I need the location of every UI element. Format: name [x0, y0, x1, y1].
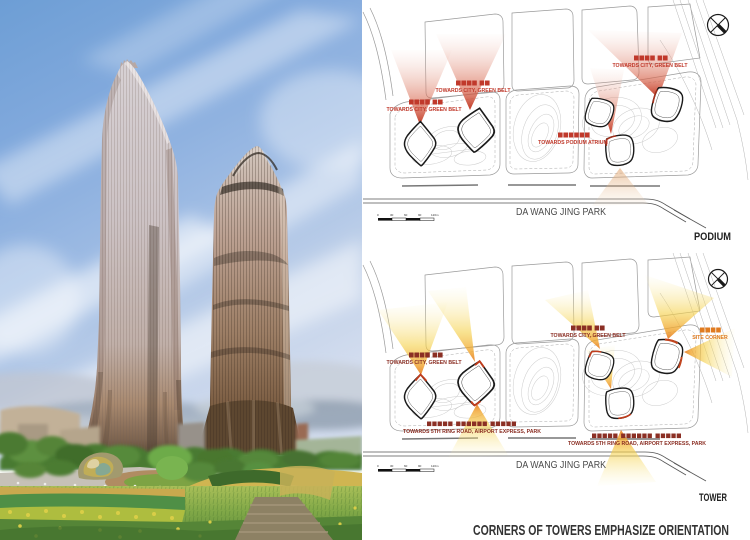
svg-text:PODIUM: PODIUM [694, 231, 731, 243]
svg-text:60: 60 [404, 464, 408, 468]
svg-text:DA WANG JING PARK: DA WANG JING PARK [516, 207, 606, 218]
svg-text:TOWARDS CITY, GREEN BELT: TOWARDS CITY, GREEN BELT [550, 333, 626, 339]
svg-text:120m: 120m [431, 213, 439, 217]
svg-text:CORNERS OF TOWERS EMPHASIZE OR: CORNERS OF TOWERS EMPHASIZE ORIENTATION [473, 522, 729, 539]
svg-text:TOWARDS 5TH RING ROAD, AIRPORT: TOWARDS 5TH RING ROAD, AIRPORT EXPRESS, … [568, 441, 706, 447]
svg-text:TOWARDS CITY, GREEN BELT: TOWARDS CITY, GREEN BELT [386, 107, 462, 113]
svg-text:30: 30 [390, 213, 394, 217]
svg-text:30: 30 [390, 464, 394, 468]
svg-text:90: 90 [418, 464, 422, 468]
svg-text:TOWER: TOWER [699, 492, 727, 504]
svg-text:SITE CORNER: SITE CORNER [692, 335, 728, 341]
svg-text:TOWARDS CITY, GREEN BELT: TOWARDS CITY, GREEN BELT [435, 88, 511, 94]
svg-text:120m: 120m [431, 464, 439, 468]
svg-text:TOWARDS PODIUM ATRIUM: TOWARDS PODIUM ATRIUM [538, 140, 608, 146]
svg-text:TOWARDS CITY, GREEN BELT: TOWARDS CITY, GREEN BELT [386, 360, 462, 366]
svg-text:TOWARDS 5TH RING ROAD, AIRPORT: TOWARDS 5TH RING ROAD, AIRPORT EXPRESS, … [403, 429, 541, 435]
svg-text:90: 90 [418, 213, 422, 217]
svg-text:TOWARDS CITY, GREEN BELT: TOWARDS CITY, GREEN BELT [612, 63, 688, 69]
svg-text:60: 60 [404, 213, 408, 217]
svg-text:DA WANG JING PARK: DA WANG JING PARK [516, 460, 606, 471]
